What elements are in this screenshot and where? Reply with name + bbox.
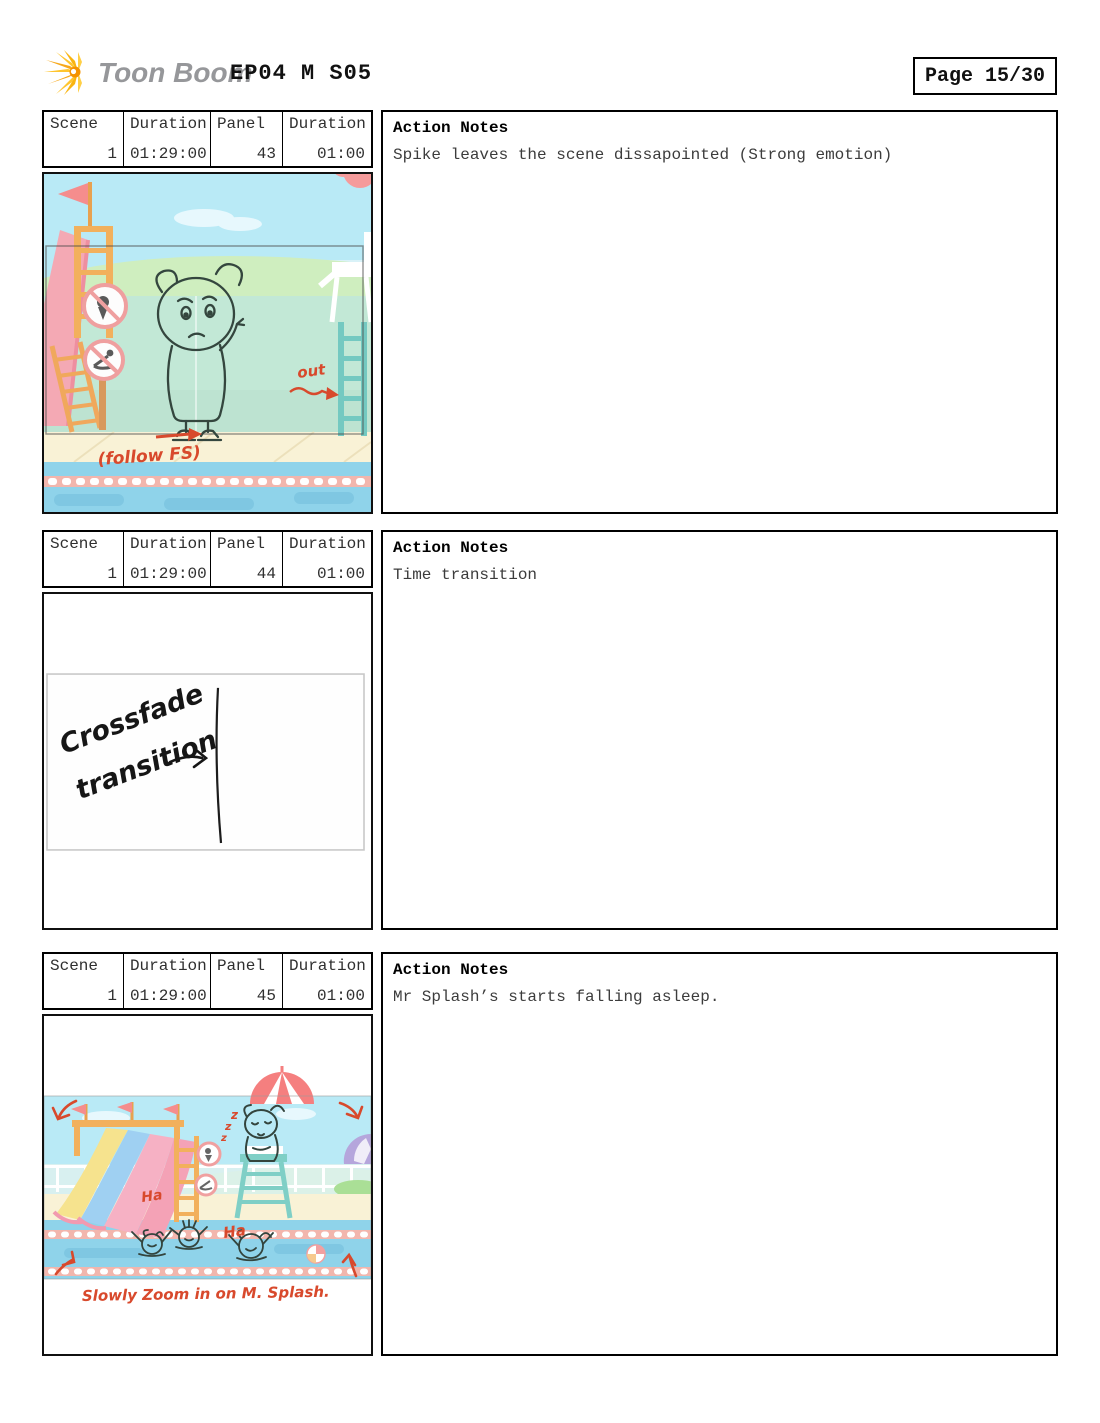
scene-header: Scene bbox=[50, 115, 117, 133]
panel-duration-value: 01:00 bbox=[289, 145, 365, 163]
action-notes-title: Action Notes bbox=[393, 539, 1046, 557]
panel-44-drawing: Crossfade transition bbox=[44, 594, 371, 928]
action-notes-text: Mr Splash’s starts falling asleep. bbox=[393, 988, 1046, 1006]
action-notes-title: Action Notes bbox=[393, 961, 1046, 979]
panel-duration-value: 01:00 bbox=[289, 987, 365, 1005]
pool-scene: z z z bbox=[44, 1066, 371, 1279]
panel-cell-label: Panel 44 bbox=[210, 532, 282, 586]
storyboard-panel-44: Crossfade transition bbox=[42, 592, 373, 930]
panel-value: 45 bbox=[217, 987, 276, 1005]
scene-duration-cell: Duration 01:29:00 bbox=[123, 532, 210, 586]
panel-45-drawing: z z z bbox=[44, 1016, 371, 1354]
panel-header: Panel bbox=[217, 535, 276, 553]
toon-boom-logo-icon bbox=[44, 50, 92, 96]
scene-duration-value: 01:29:00 bbox=[130, 145, 204, 163]
action-notes-box: Action Notes Spike leaves the scene diss… bbox=[381, 110, 1058, 514]
duration-header: Duration bbox=[130, 115, 204, 133]
meta-table: Scene 1 Duration 01:29:00 Panel 45 Durat… bbox=[42, 952, 373, 1010]
panel-value: 43 bbox=[217, 145, 276, 163]
ha-annotation: Ha bbox=[222, 1221, 247, 1242]
storyboard-panel-45: z z z bbox=[42, 1014, 373, 1356]
panel-duration-cell: Duration 01:00 bbox=[282, 532, 371, 586]
brand: Toon Boom bbox=[44, 50, 252, 96]
panel-value: 44 bbox=[217, 565, 276, 583]
scene-duration-value: 01:29:00 bbox=[130, 565, 204, 583]
panel-duration-value: 01:00 bbox=[289, 565, 365, 583]
zzz-annotation: z bbox=[224, 1120, 232, 1133]
panel-header: Panel bbox=[217, 115, 276, 133]
duration-header: Duration bbox=[289, 535, 365, 553]
panel-cell-label: Panel 43 bbox=[210, 112, 282, 166]
duration-header: Duration bbox=[289, 957, 365, 975]
page-number-box: Page 15/30 bbox=[913, 57, 1057, 95]
scene-cell: Scene 1 bbox=[44, 954, 123, 1008]
action-notes-box: Action Notes Mr Splash’s starts falling … bbox=[381, 952, 1058, 1356]
scene-header: Scene bbox=[50, 535, 117, 553]
action-notes-text: Spike leaves the scene dissapointed (Str… bbox=[393, 146, 1046, 164]
scene-value: 1 bbox=[50, 987, 117, 1005]
camera-frame bbox=[47, 674, 364, 850]
duration-header: Duration bbox=[130, 535, 204, 553]
beach-ball-icon bbox=[307, 1245, 325, 1263]
scene-duration-cell: Duration 01:29:00 bbox=[123, 112, 210, 166]
action-notes-box: Action Notes Time transition bbox=[381, 530, 1058, 930]
ha-annotation: Ha bbox=[140, 1187, 163, 1206]
action-notes-title: Action Notes bbox=[393, 119, 1046, 137]
scene-cell: Scene 1 bbox=[44, 532, 123, 586]
scene-header: Scene bbox=[50, 957, 117, 975]
zzz-annotation: z bbox=[220, 1133, 227, 1144]
scene-duration-value: 01:29:00 bbox=[130, 987, 204, 1005]
meta-table: Scene 1 Duration 01:29:00 Panel 43 Durat… bbox=[42, 110, 373, 168]
meta-table: Scene 1 Duration 01:29:00 Panel 44 Durat… bbox=[42, 530, 373, 588]
scene-cell: Scene 1 bbox=[44, 112, 123, 166]
action-notes-text: Time transition bbox=[393, 566, 1046, 584]
storyboard-panel-43: out (follow FS) bbox=[42, 172, 373, 514]
panel-duration-cell: Duration 01:00 bbox=[282, 954, 371, 1008]
scene-value: 1 bbox=[50, 565, 117, 583]
scene-duration-cell: Duration 01:29:00 bbox=[123, 954, 210, 1008]
duration-header: Duration bbox=[130, 957, 204, 975]
duration-header: Duration bbox=[289, 115, 365, 133]
panel-duration-cell: Duration 01:00 bbox=[282, 112, 371, 166]
page-title: EP04 M S05 bbox=[230, 61, 372, 86]
no-diving-sign-icon bbox=[85, 341, 123, 379]
panel-43-drawing: out (follow FS) bbox=[44, 174, 371, 512]
panel-cell-label: Panel 45 bbox=[210, 954, 282, 1008]
lane-rope-dashes bbox=[48, 478, 365, 485]
storyboard-page: { "header": { "logo_text": "Toon Boom", … bbox=[0, 0, 1100, 1423]
scene-value: 1 bbox=[50, 145, 117, 163]
panel-header: Panel bbox=[217, 957, 276, 975]
